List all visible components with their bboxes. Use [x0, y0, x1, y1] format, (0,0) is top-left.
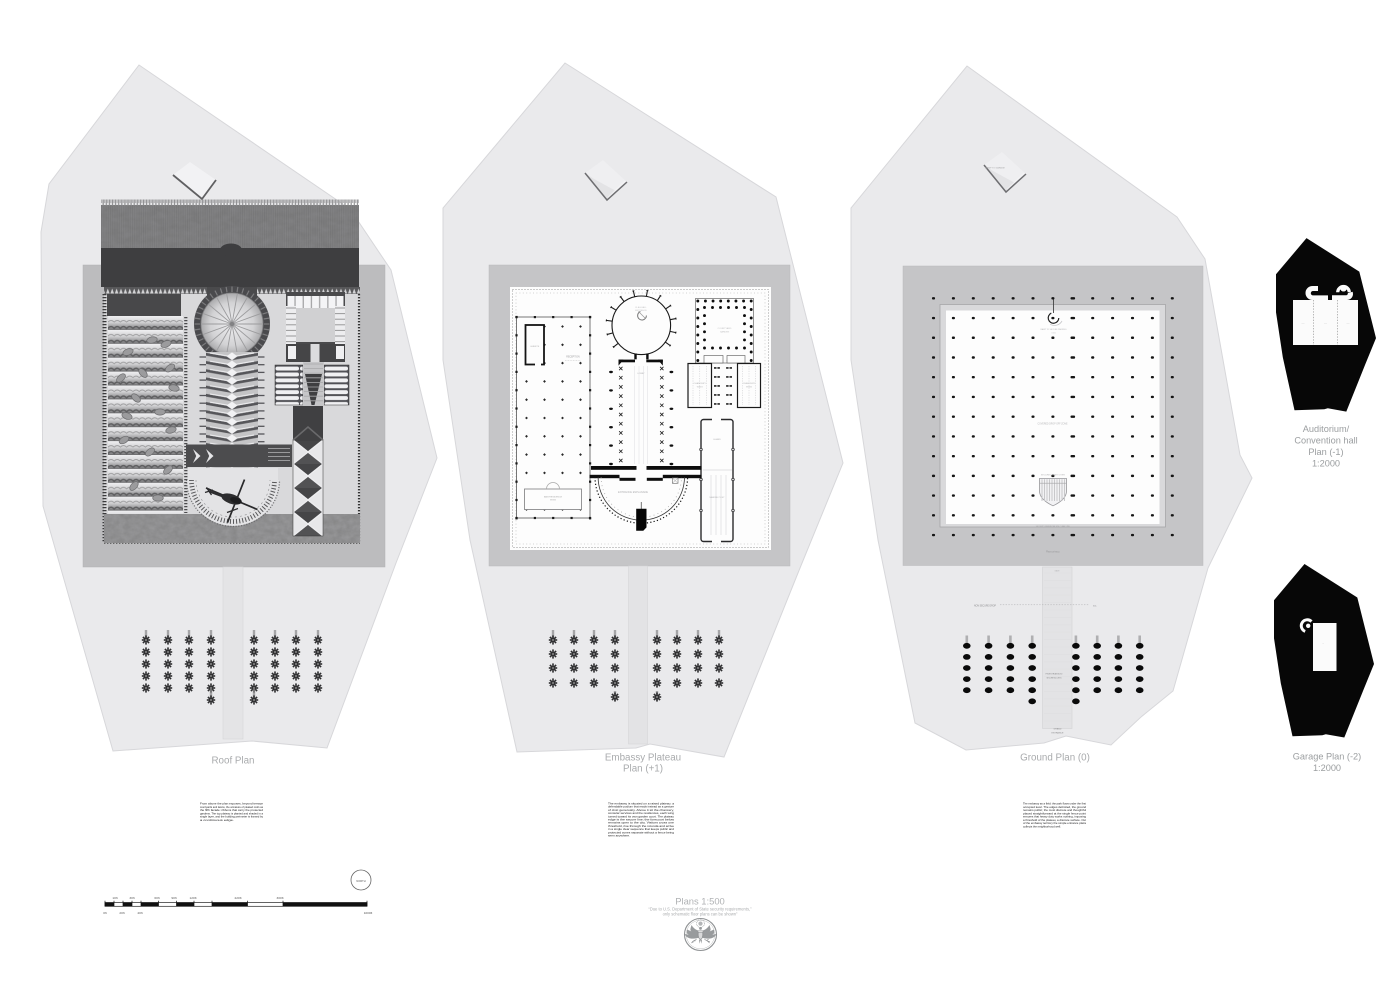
svg-text:CHANCERY: CHANCERY: [743, 382, 756, 385]
svg-text:MARINE POST: MARINE POST: [709, 496, 725, 499]
svg-text:FLAG HALL: FLAG HALL: [635, 306, 647, 309]
svg-text:Plans 1:500: Plans 1:500: [675, 896, 725, 907]
svg-text:Plan (+1): Plan (+1): [623, 764, 663, 775]
svg-text:GUESTS: GUESTS: [530, 346, 540, 348]
svg-text:GUARD: GUARD: [713, 438, 721, 441]
svg-text:ENTRANCE: ENTRANCE: [635, 309, 647, 312]
svg-text:only schematic floor plans can: only schematic floor plans can be shown”: [663, 911, 738, 916]
svg-text:NON SECURE DROP: NON SECURE DROP: [974, 604, 996, 607]
svg-text:GRAND: GRAND: [1054, 728, 1062, 731]
svg-text:·: ·: [1322, 641, 1323, 646]
svg-text:20ft: 20ft: [119, 911, 124, 915]
svg-text:Embassy Plateau: Embassy Plateau: [605, 753, 681, 764]
svg-text:ENTRANCE: ENTRANCE: [1051, 731, 1064, 734]
svg-text:1000ft: 1000ft: [364, 911, 373, 915]
svg-text:60ft: 60ft: [154, 896, 159, 900]
svg-text:—: —: [1347, 321, 1350, 325]
svg-text:PEDESTRIAN BLVD: PEDESTRIAN BLVD: [1046, 673, 1063, 676]
svg-text:GARDEN: GARDEN: [720, 330, 730, 333]
svg-text:COURTYARD: COURTYARD: [718, 327, 732, 330]
svg-text:220ft: 220ft: [235, 896, 242, 900]
svg-text:1:2000: 1:2000: [1313, 763, 1341, 773]
svg-text:AMB RESIDENCE: AMB RESIDENCE: [544, 496, 563, 499]
svg-text:WING: WING: [550, 500, 556, 502]
svg-text:SECURE ACCESS: SECURE ACCESS: [1047, 676, 1062, 679]
svg-text:Plaza privacy: Plaza privacy: [1046, 551, 1061, 554]
svg-text:SECURE LOBBY OVER: SECURE LOBBY OVER: [1041, 475, 1065, 477]
svg-text:COVERED DROP OFF ZONE: COVERED DROP OFF ZONE: [1038, 423, 1068, 426]
svg-text:collects the neighborhood well: collects the neighborhood well.: [1023, 824, 1061, 828]
svg-text:LOBBY: LOBBY: [637, 373, 645, 375]
svg-text:WING: WING: [746, 386, 752, 388]
svg-text:40ft: 40ft: [137, 911, 142, 915]
svg-text:GATE: GATE: [1054, 570, 1060, 573]
svg-text:RAMP TO GARAGE: RAMP TO GARAGE: [985, 167, 1005, 170]
svg-text:300ft: 300ft: [277, 896, 284, 900]
svg-text:Auditorium/: Auditorium/: [1303, 424, 1350, 434]
svg-text:WING: WING: [697, 386, 703, 388]
svg-text:30ft: 30ft: [129, 896, 134, 900]
svg-text:Ground Plan (0): Ground Plan (0): [1020, 753, 1090, 764]
svg-text:1:2000: 1:2000: [1312, 459, 1340, 469]
svg-text:seen anywhere.: seen anywhere.: [608, 834, 630, 838]
svg-text:Roof Plan: Roof Plan: [211, 756, 254, 767]
svg-text:Convention hall: Convention hall: [1294, 436, 1357, 446]
svg-text:ENTRANCE ESPLANADE: ENTRANCE ESPLANADE: [618, 491, 649, 494]
svg-text:RAMP TO SECURE PARKING: RAMP TO SECURE PARKING: [1041, 328, 1067, 331]
svg-text:Plan (-1): Plan (-1): [1308, 447, 1343, 457]
svg-text:—: —: [1302, 321, 1305, 325]
svg-text:10ft: 10ft: [112, 896, 117, 900]
svg-text:NORTH: NORTH: [356, 879, 365, 883]
svg-text:RECEPTION: RECEPTION: [566, 357, 580, 359]
svg-text:—: —: [1324, 321, 1327, 325]
svg-text:120ft: 120ft: [190, 896, 197, 900]
svg-text:90ft: 90ft: [171, 896, 176, 900]
svg-text:SECURITY PERIMETER 30M CLEAR L: SECURITY PERIMETER 30M CLEAR LINE: [1036, 525, 1070, 528]
svg-text:a continuous edge.: a continuous edge.: [200, 818, 234, 822]
svg-text:0ft: 0ft: [103, 911, 107, 915]
svg-text:Garage Plan (-2): Garage Plan (-2): [1293, 752, 1361, 762]
svg-text:CHANCERY: CHANCERY: [694, 382, 707, 385]
